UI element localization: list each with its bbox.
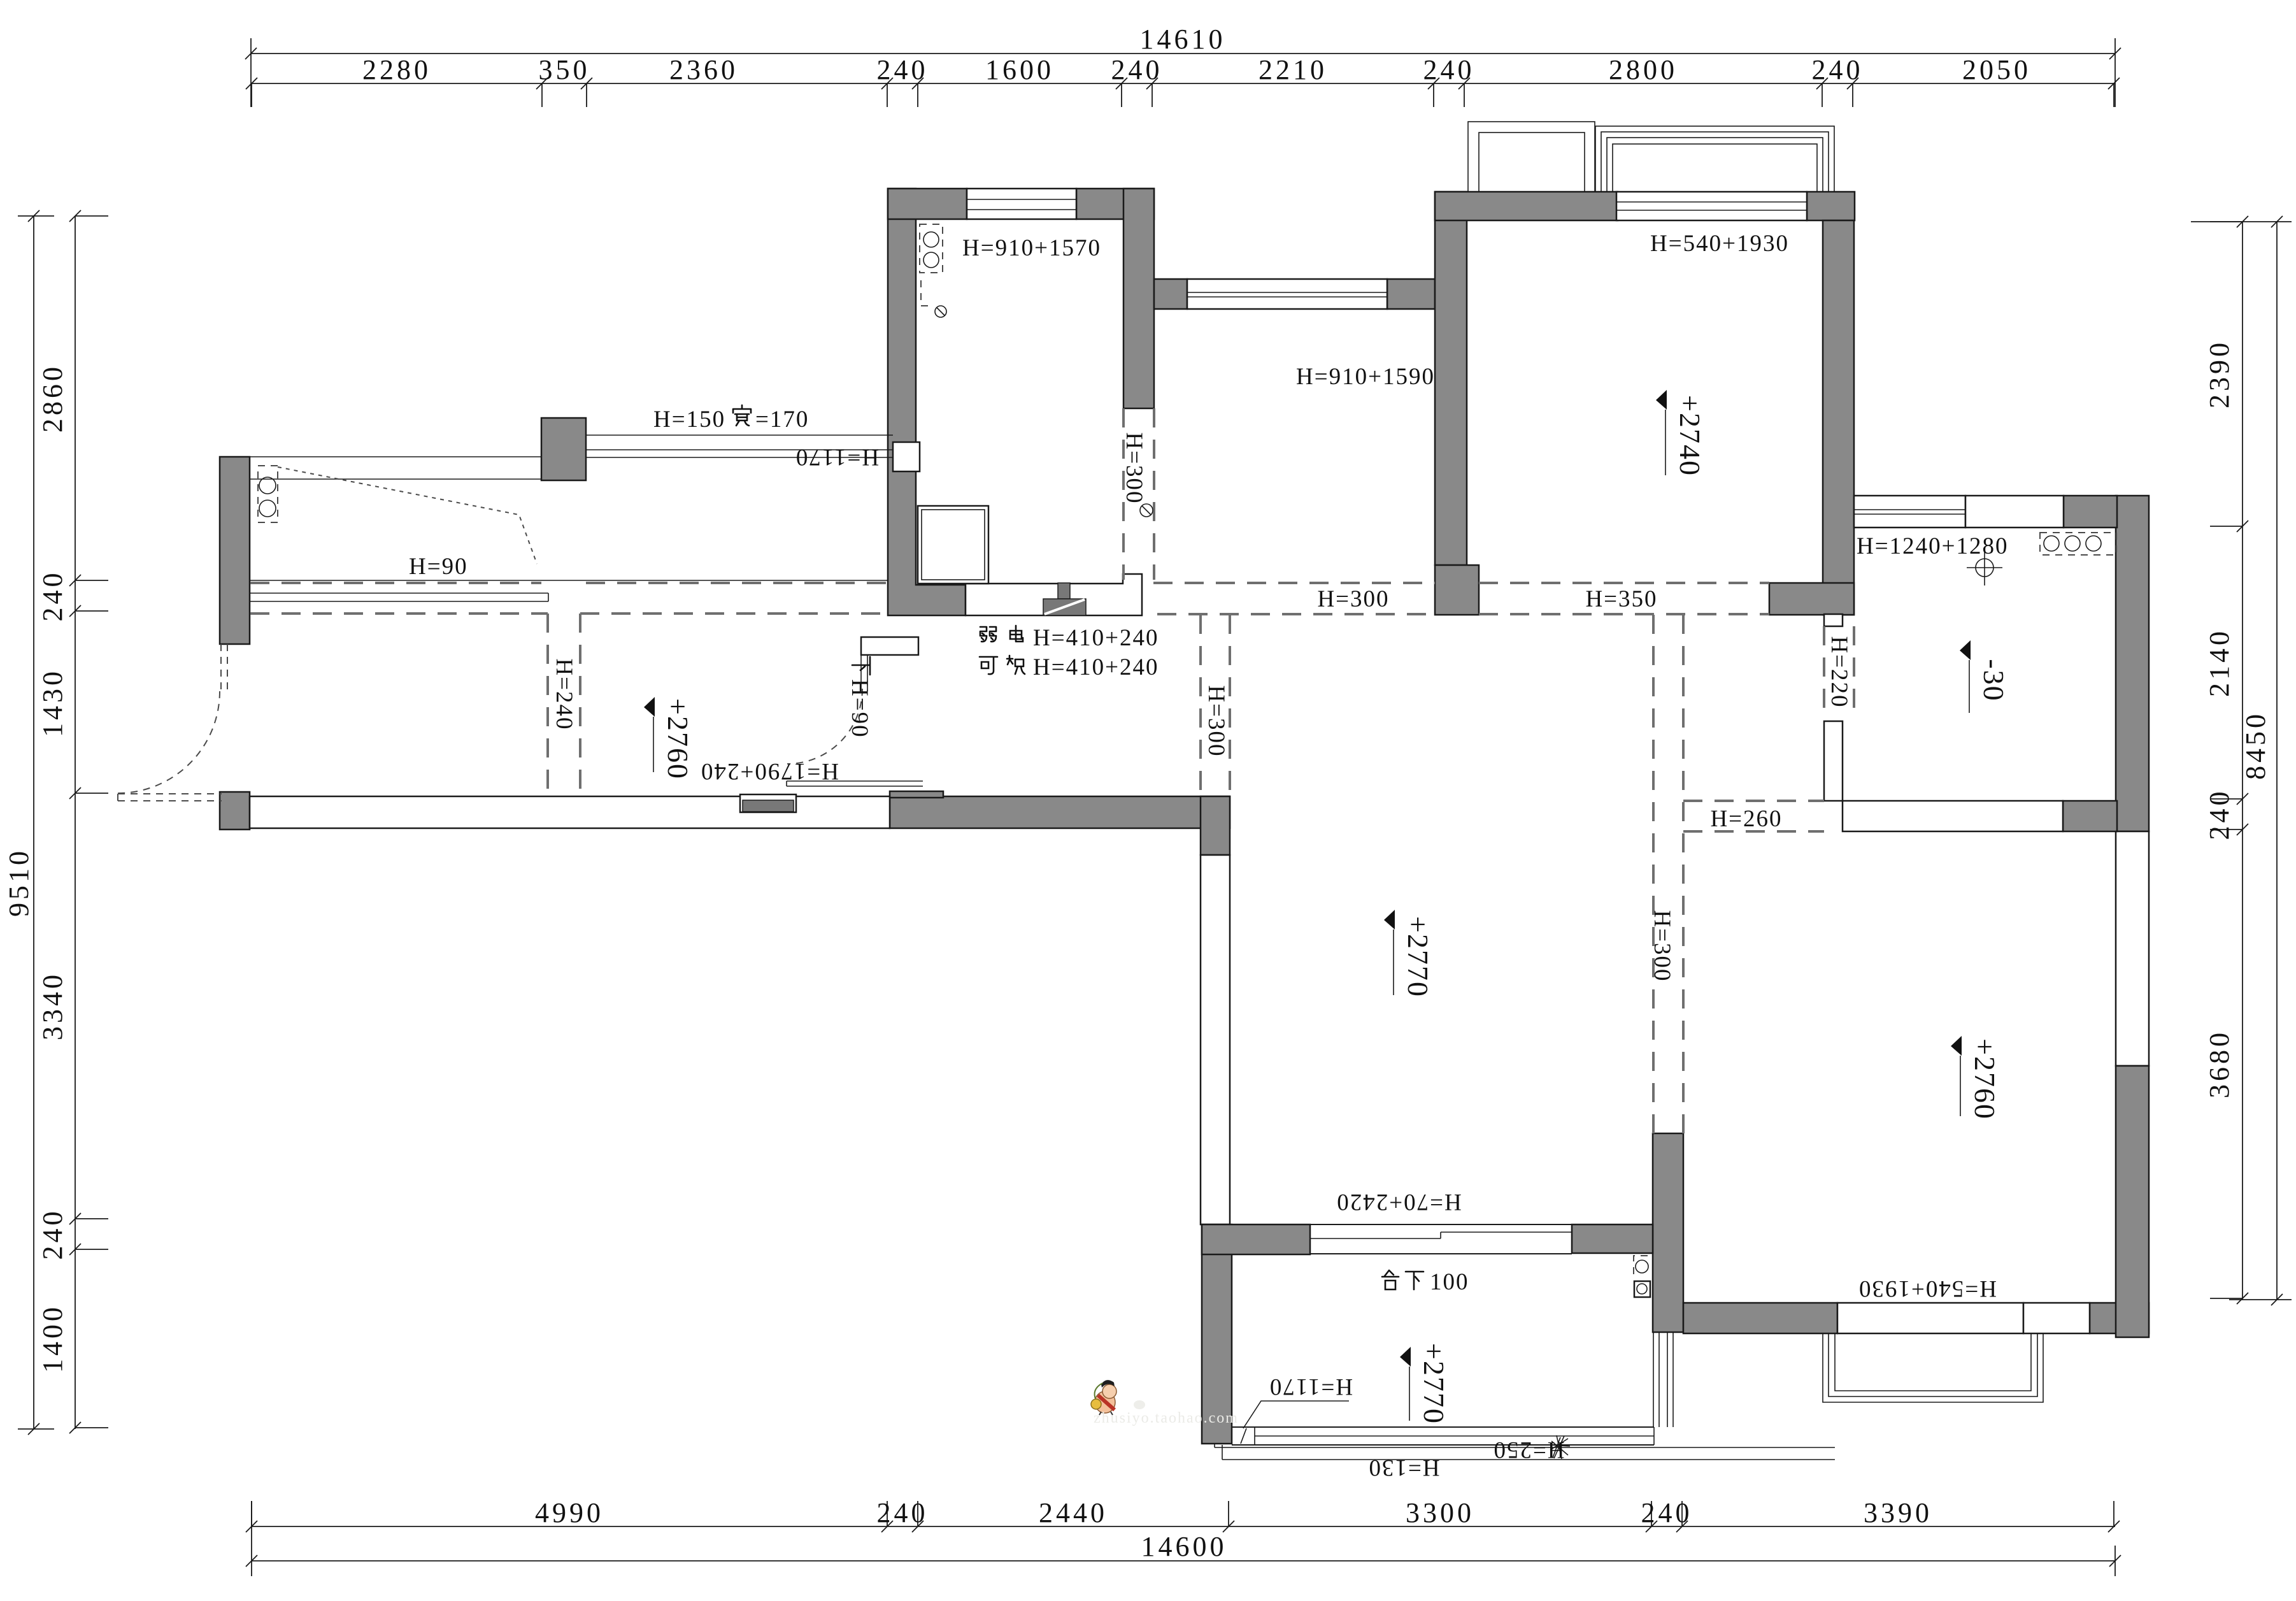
svg-text:H=250: H=250 bbox=[1492, 1437, 1564, 1463]
svg-text:240: 240 bbox=[877, 1497, 929, 1528]
svg-text:H=540+1930: H=540+1930 bbox=[1650, 231, 1789, 257]
svg-text:3300: 3300 bbox=[1406, 1497, 1474, 1528]
svg-text:2140: 2140 bbox=[2204, 628, 2235, 697]
svg-text:H=1170: H=1170 bbox=[1269, 1374, 1353, 1400]
svg-text:H=350: H=350 bbox=[1585, 586, 1657, 612]
svg-text:240: 240 bbox=[37, 570, 68, 622]
svg-text:H=300: H=300 bbox=[1203, 685, 1229, 757]
svg-text:H=1240+1280: H=1240+1280 bbox=[1857, 533, 2008, 559]
svg-text:H=910+1570: H=910+1570 bbox=[962, 235, 1101, 261]
svg-text:3340: 3340 bbox=[37, 972, 68, 1040]
svg-text:2440: 2440 bbox=[1039, 1497, 1108, 1528]
svg-text:H=410+240: H=410+240 bbox=[1033, 654, 1159, 680]
svg-text:2390: 2390 bbox=[2204, 340, 2235, 408]
svg-text:3680: 3680 bbox=[2204, 1030, 2235, 1098]
svg-text:H=300: H=300 bbox=[1317, 586, 1389, 612]
svg-text:+2760: +2760 bbox=[662, 698, 694, 780]
svg-text:240: 240 bbox=[37, 1209, 68, 1260]
svg-text:H=910+1590: H=910+1590 bbox=[1296, 364, 1435, 390]
svg-text:8450: 8450 bbox=[2240, 711, 2271, 780]
svg-text:H=410+240: H=410+240 bbox=[1033, 625, 1159, 651]
svg-text:+2760: +2760 bbox=[1969, 1038, 2001, 1120]
svg-text:240: 240 bbox=[1641, 1497, 1693, 1528]
svg-text:H=70+2420: H=70+2420 bbox=[1336, 1189, 1461, 1215]
svg-text:1600: 1600 bbox=[985, 54, 1054, 85]
svg-text:-30: -30 bbox=[1978, 659, 2010, 701]
svg-text:240: 240 bbox=[1812, 54, 1864, 85]
svg-text:2280: 2280 bbox=[362, 54, 431, 85]
svg-text:=170: =170 bbox=[755, 406, 809, 433]
svg-text:14610: 14610 bbox=[1140, 24, 1226, 55]
svg-text:H=260: H=260 bbox=[1710, 806, 1782, 832]
svg-text:4990: 4990 bbox=[535, 1497, 604, 1528]
svg-text:H=300: H=300 bbox=[1121, 432, 1147, 504]
svg-text:H=1170: H=1170 bbox=[795, 444, 879, 470]
svg-text:H=240: H=240 bbox=[551, 658, 577, 730]
svg-text:240: 240 bbox=[1423, 54, 1475, 85]
svg-text:14600: 14600 bbox=[1141, 1531, 1227, 1562]
svg-text:H=540+1930: H=540+1930 bbox=[1858, 1275, 1997, 1302]
svg-text:9510: 9510 bbox=[3, 848, 34, 917]
svg-text:240: 240 bbox=[2204, 789, 2235, 840]
svg-text:2360: 2360 bbox=[669, 54, 738, 85]
svg-text:3390: 3390 bbox=[1864, 1497, 1932, 1528]
svg-text:+2770: +2770 bbox=[1418, 1343, 1450, 1425]
svg-text:+2770: +2770 bbox=[1402, 916, 1434, 998]
svg-text:H=220: H=220 bbox=[1826, 636, 1852, 708]
svg-text:H=1790+240: H=1790+240 bbox=[700, 758, 839, 784]
svg-text:240: 240 bbox=[1111, 54, 1163, 85]
svg-text:H=90: H=90 bbox=[846, 679, 873, 738]
svg-text:2050: 2050 bbox=[1962, 54, 2031, 85]
svg-text:H=150: H=150 bbox=[653, 406, 725, 433]
svg-text:H=90: H=90 bbox=[409, 554, 468, 580]
svg-text:350: 350 bbox=[539, 54, 590, 85]
svg-text:H=300: H=300 bbox=[1649, 910, 1675, 982]
svg-text:H=130: H=130 bbox=[1367, 1454, 1439, 1481]
svg-text:+2740: +2740 bbox=[1674, 395, 1706, 477]
svg-text:2800: 2800 bbox=[1609, 54, 1678, 85]
svg-text:100: 100 bbox=[1430, 1269, 1469, 1295]
svg-text:2860: 2860 bbox=[37, 364, 68, 433]
svg-text:zhusiyo.taohao.com: zhusiyo.taohao.com bbox=[1094, 1410, 1239, 1426]
svg-text:240: 240 bbox=[877, 54, 929, 85]
svg-text:2210: 2210 bbox=[1259, 54, 1327, 85]
svg-text:1430: 1430 bbox=[37, 668, 68, 737]
svg-text:1400: 1400 bbox=[37, 1304, 68, 1373]
